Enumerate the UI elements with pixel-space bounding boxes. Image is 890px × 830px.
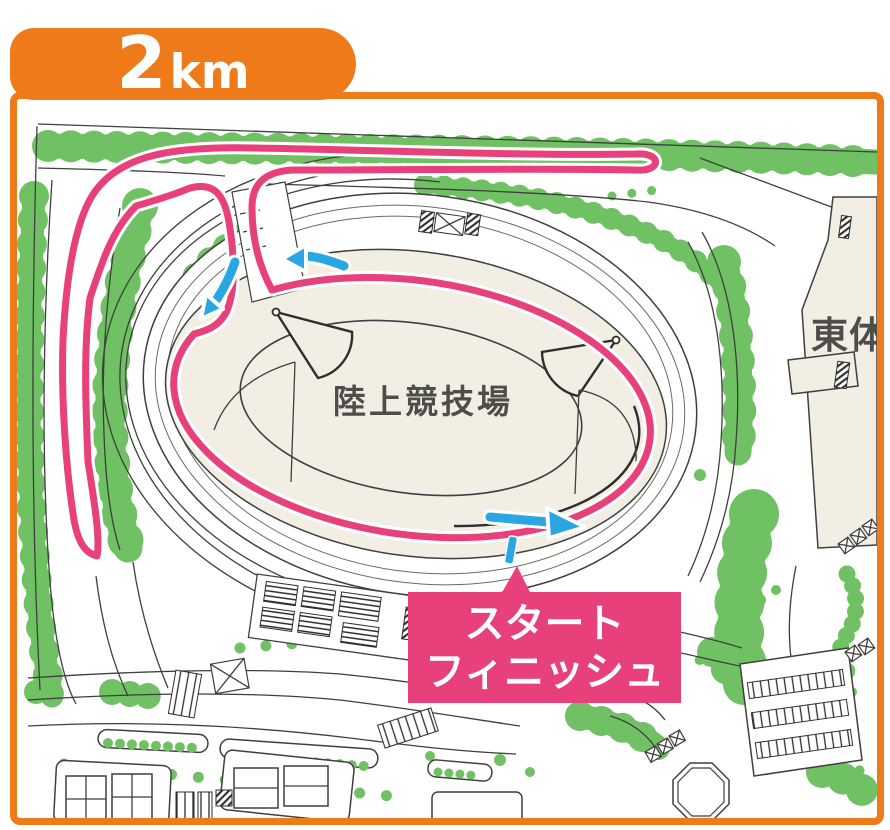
octagon-plaza (673, 763, 729, 818)
stadium-label: 陸上競技場 (283, 375, 563, 423)
course-map-page: 陸上競技場 東体 スタート フィニッシュ 2 km (0, 0, 890, 830)
start-finish-badge: スタート フィニッシュ (408, 592, 681, 703)
tennis-courts-left (53, 749, 354, 818)
gymnasium-label: 東体 (811, 305, 884, 359)
gymnasium-building (788, 197, 877, 548)
start-finish-line1: スタート (465, 600, 625, 648)
crosswalk (210, 658, 249, 693)
distance-value: 2 (116, 30, 166, 96)
distance-unit: km (169, 45, 249, 100)
enclosure-bottom-center (432, 792, 522, 818)
parking-lot (740, 648, 862, 776)
map-frame: 陸上競技場 東体 スタート フィニッシュ (10, 92, 884, 825)
distance-badge: 2 km (10, 28, 356, 100)
park-map (17, 99, 877, 818)
start-finish-line2: フィニッシュ (425, 648, 664, 696)
